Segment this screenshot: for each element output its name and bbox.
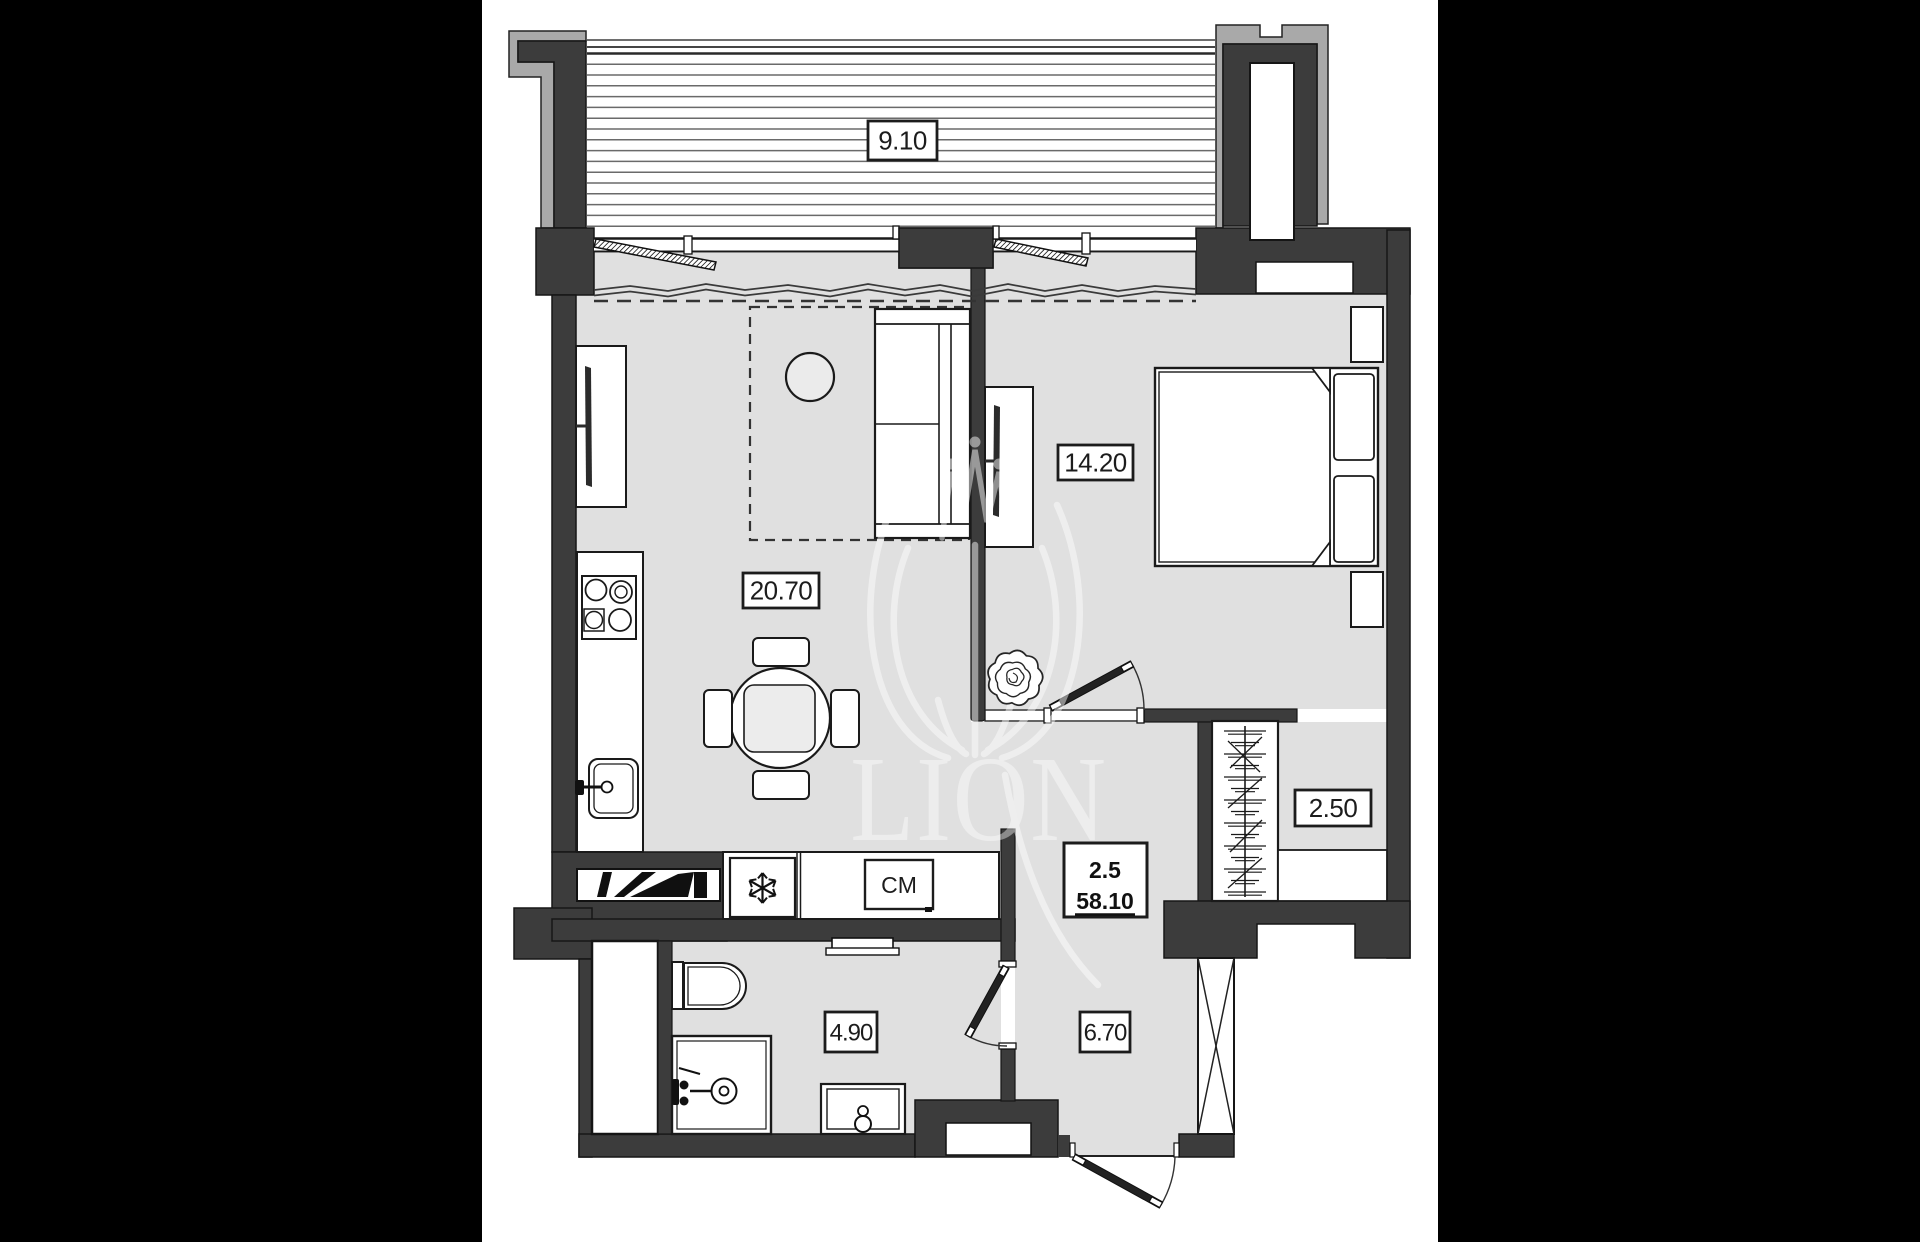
svg-text:LION: LION — [850, 732, 1107, 867]
svg-text:9.10: 9.10 — [878, 126, 927, 156]
svg-text:14.20: 14.20 — [1064, 448, 1127, 478]
svg-text:58.10: 58.10 — [1076, 888, 1134, 914]
svg-text:2.50: 2.50 — [1309, 793, 1358, 823]
svg-text:4.90: 4.90 — [830, 1019, 873, 1046]
svg-text:CM: CM — [881, 872, 917, 898]
svg-text:20.70: 20.70 — [750, 576, 813, 606]
svg-text:6.70: 6.70 — [1084, 1019, 1127, 1046]
